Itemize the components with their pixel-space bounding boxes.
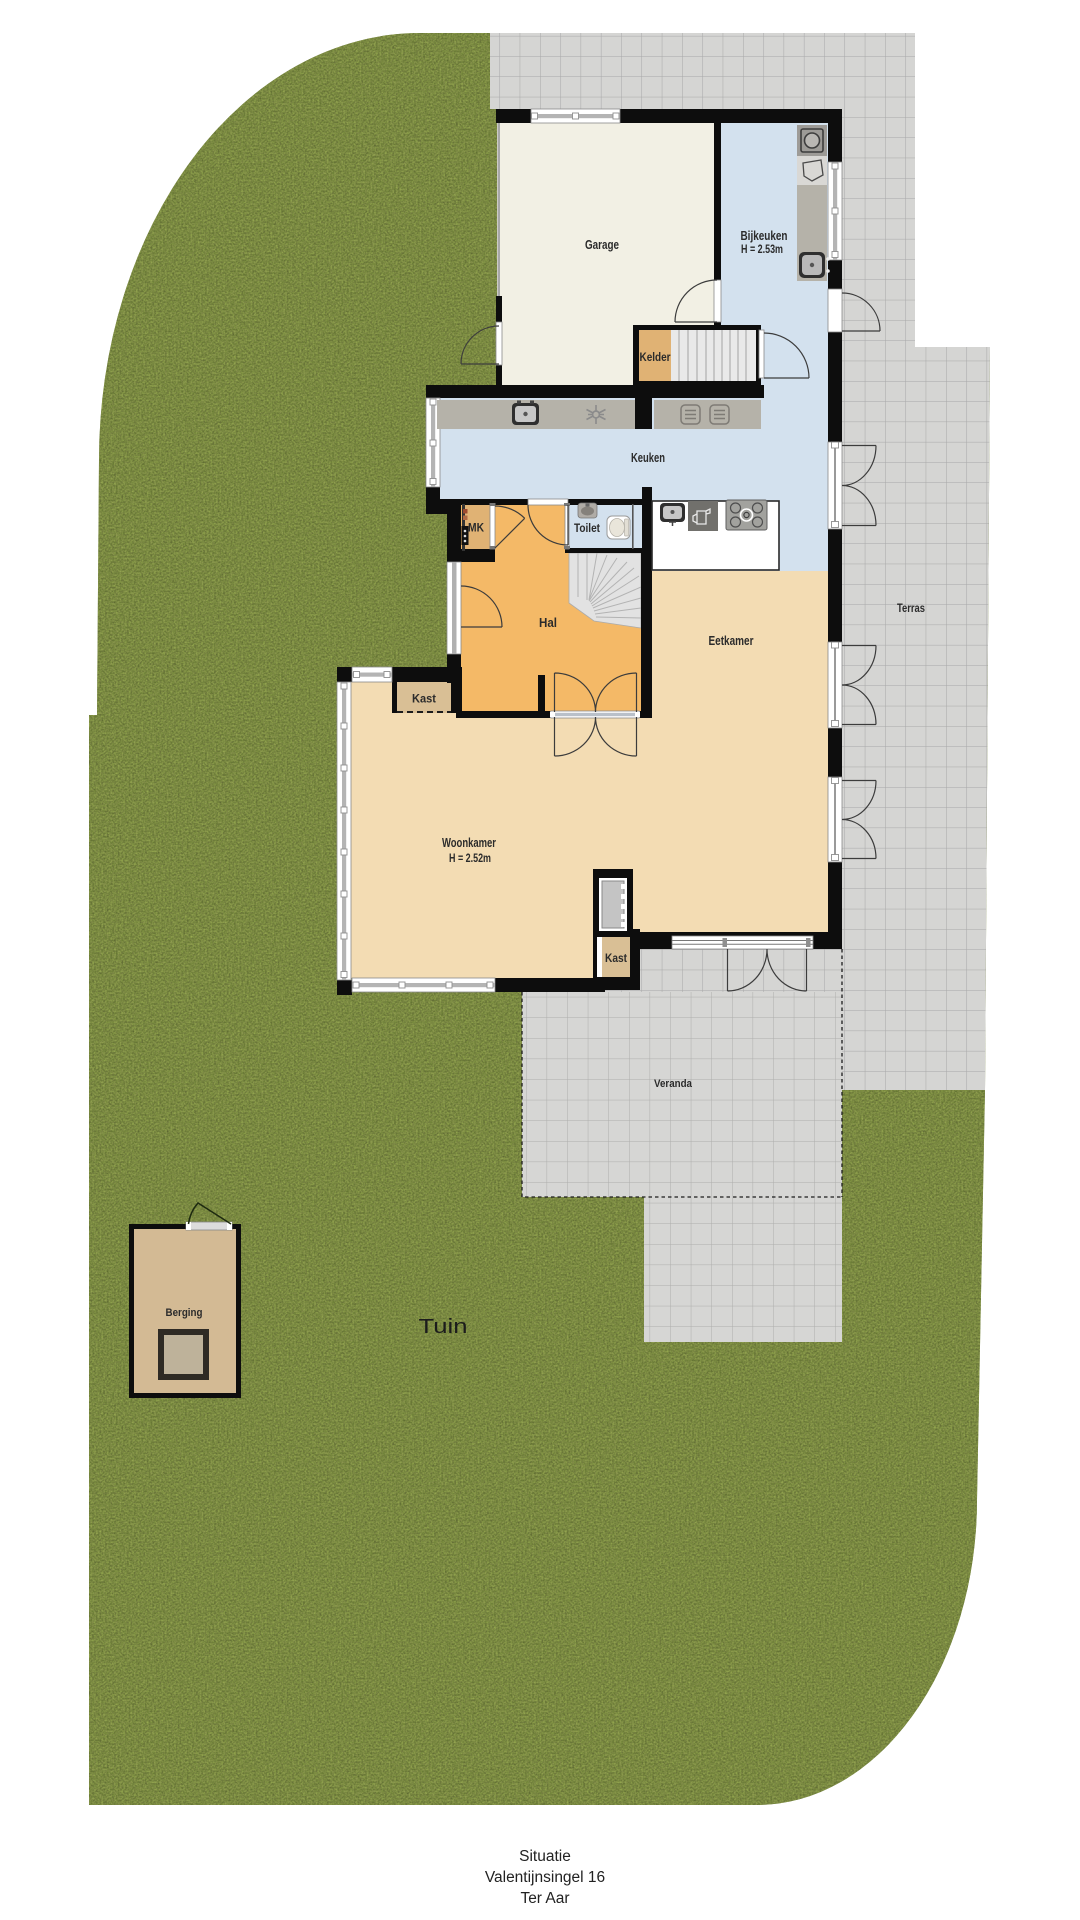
svg-text:Ter Aar: Ter Aar <box>520 1890 569 1907</box>
svg-text:Situatie: Situatie <box>519 1848 571 1865</box>
svg-text:Woonkamer: Woonkamer <box>442 836 496 850</box>
svg-text:Eetkamer: Eetkamer <box>709 634 754 648</box>
svg-text:Toilet: Toilet <box>574 523 600 535</box>
svg-text:Terras: Terras <box>897 603 925 615</box>
svg-text:H = 2.53m: H = 2.53m <box>741 242 783 256</box>
svg-text:Keuken: Keuken <box>631 451 665 465</box>
svg-text:Tuin: Tuin <box>419 1316 468 1338</box>
svg-text:Kast: Kast <box>605 953 627 965</box>
svg-text:Hal: Hal <box>539 616 557 630</box>
svg-text:Valentijnsingel 16: Valentijnsingel 16 <box>485 1869 605 1886</box>
svg-text:MK: MK <box>468 521 484 535</box>
svg-text:Garage: Garage <box>585 237 619 252</box>
svg-text:Kelder: Kelder <box>640 350 671 364</box>
svg-text:H = 2.52m: H = 2.52m <box>449 851 491 865</box>
svg-text:Veranda: Veranda <box>654 1078 693 1090</box>
svg-text:Berging: Berging <box>166 1307 203 1319</box>
svg-text:Kast: Kast <box>412 692 436 706</box>
svg-text:Bijkeuken: Bijkeuken <box>741 229 788 243</box>
